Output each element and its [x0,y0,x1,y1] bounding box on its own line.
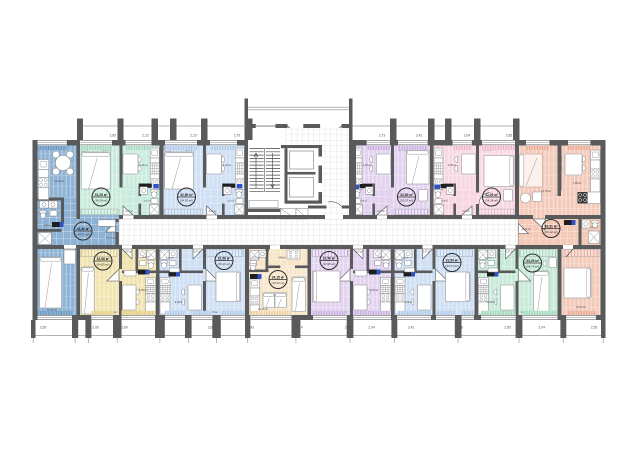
svg-text:43,46 м²: 43,46 м² [77,227,91,231]
svg-text:0,07 м²: 0,07 м² [227,200,234,203]
svg-text:(35,74 м²): (35,74 м²) [446,264,459,268]
svg-text:2,42: 2,42 [416,133,423,137]
svg-text:3,28 м²: 3,28 м² [377,256,384,259]
svg-text:2,85: 2,85 [506,133,513,137]
svg-text:3,37 м²: 3,37 м² [506,251,514,254]
svg-text:5,14: 5,14 [296,326,303,330]
svg-text:3,37 м²: 3,37 м² [193,251,201,254]
svg-text:3,29 м²: 3,29 м² [401,257,408,260]
svg-text:(35,07 м²): (35,07 м²) [400,198,413,202]
svg-text:11,36 м²: 11,36 м² [258,307,268,311]
svg-text:3,07 м²: 3,07 м² [355,251,363,254]
svg-text:2,85: 2,85 [456,326,463,330]
svg-text:2,06: 2,06 [92,326,99,330]
svg-text:3,27 м²: 3,27 м² [209,210,217,213]
svg-text:32,58 м²: 32,58 м² [323,256,337,260]
svg-text:2,04: 2,04 [538,326,545,330]
svg-text:10,01 м²: 10,01 м² [521,228,530,231]
svg-text:2,55: 2,55 [40,326,47,330]
svg-text:2,79: 2,79 [234,133,241,137]
svg-text:5,07 м²: 5,07 м² [252,257,260,260]
svg-text:(35,16 м²): (35,16 м²) [218,262,231,266]
svg-text:33,59 м²: 33,59 м² [446,258,460,262]
svg-text:3,27 м²: 3,27 м² [377,210,385,213]
svg-text:2,85: 2,85 [345,326,352,330]
svg-text:2,04: 2,04 [368,326,375,330]
svg-text:2,23: 2,23 [190,133,197,137]
svg-text:2,85: 2,85 [208,326,215,330]
svg-text:32,29 м²: 32,29 м² [95,193,109,197]
svg-text:60,31 м²: 60,31 м² [545,224,559,228]
svg-text:3,37 м²: 3,37 м² [423,251,431,254]
svg-text:2,04: 2,04 [464,133,471,137]
svg-text:9,09 м²: 9,09 м² [448,163,457,167]
svg-text:3,27 м²: 3,27 м² [125,210,133,213]
svg-text:(34,34 м²): (34,34 м²) [95,198,108,202]
svg-text:(62,12 м²): (62,12 м²) [545,230,558,234]
svg-text:0,07 м²: 0,07 м² [144,200,151,203]
svg-text:2,42: 2,42 [408,326,415,330]
svg-text:2,73: 2,73 [379,133,386,137]
svg-text:3,27 м²: 3,27 м² [462,210,470,213]
svg-text:(34,95 м²): (34,95 м²) [97,262,110,266]
svg-text:33,29 м²: 33,29 м² [526,259,540,263]
svg-text:32,29 м²: 32,29 м² [485,193,499,197]
svg-text:32,98 м²: 32,98 м² [97,257,111,261]
svg-text:12,46 м²: 12,46 м² [54,179,64,183]
svg-text:9,09 м²: 9,09 м² [139,288,148,292]
svg-text:2,55: 2,55 [591,326,598,330]
svg-text:10,20 м²: 10,20 м² [106,236,116,240]
svg-text:16,43 м²: 16,43 м² [576,305,586,309]
svg-text:3,28 м²: 3,28 м² [360,200,367,203]
svg-text:2,80: 2,80 [121,326,128,330]
svg-text:2,42: 2,42 [248,326,255,330]
svg-text:7,85 м²: 7,85 м² [573,181,582,185]
svg-text:9,09 м²: 9,09 м² [487,300,496,304]
svg-text:3,28 м²: 3,28 м² [441,200,448,203]
svg-text:3,28 м²: 3,28 м² [142,256,149,259]
svg-text:(34,93 м²): (34,93 м²) [180,198,193,202]
svg-text:4,86 м²: 4,86 м² [278,257,286,260]
svg-text:34,15 м²: 34,15 м² [272,275,286,279]
svg-text:(34,95 м²): (34,95 м²) [323,262,336,266]
svg-text:9,09 м²: 9,09 м² [175,300,184,304]
svg-text:(44,72 м²): (44,72 м²) [77,232,90,236]
svg-text:9,09 м²: 9,09 м² [363,163,372,167]
svg-text:3,07 м²: 3,07 м² [124,251,132,254]
svg-text:16,76 м²: 16,76 м² [541,189,551,193]
svg-text:9,09 м²: 9,09 м² [370,288,379,292]
svg-text:(34,74 м²): (34,74 м²) [526,264,539,268]
svg-text:9,09 м²: 9,09 м² [404,300,413,304]
svg-text:2,85: 2,85 [504,326,511,330]
svg-text:2,85: 2,85 [109,133,116,137]
svg-text:(34,03 м²): (34,03 м²) [272,281,285,285]
svg-text:32,90 м²: 32,90 м² [180,193,194,197]
svg-text:32,58 м²: 32,58 м² [218,256,232,260]
svg-text:(34,34 м²): (34,34 м²) [485,198,498,202]
svg-text:4,36 м²: 4,36 м² [43,224,51,227]
svg-text:32,90 м²: 32,90 м² [400,193,414,197]
svg-text:2,23: 2,23 [142,133,149,137]
svg-text:3,29 м²: 3,29 м² [166,257,173,260]
svg-text:9,29 м²: 9,29 м² [223,163,232,167]
svg-text:9,29 м²: 9,29 м² [139,163,148,167]
svg-text:4,06 м²: 4,06 м² [590,226,597,229]
svg-text:3,29 м²: 3,29 м² [484,257,491,260]
